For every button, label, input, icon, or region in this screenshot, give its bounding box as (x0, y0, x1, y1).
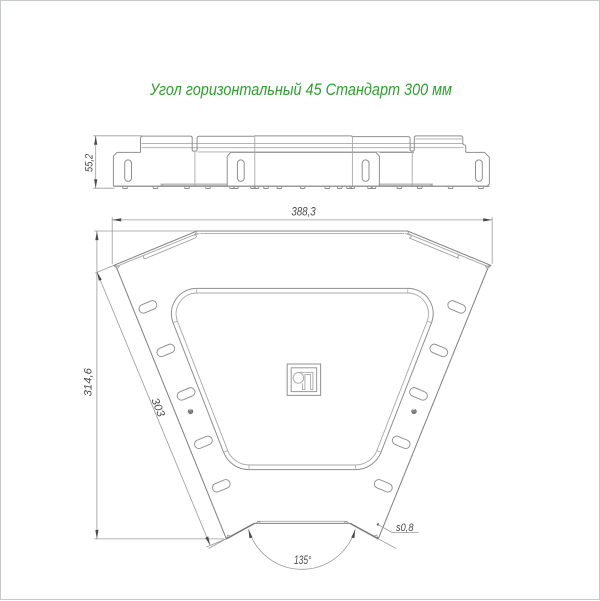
svg-text:314,6: 314,6 (82, 367, 94, 396)
svg-text:135°: 135° (294, 555, 312, 567)
svg-text:55,2: 55,2 (84, 154, 96, 172)
svg-text:388,3: 388,3 (291, 205, 316, 219)
svg-text:303: 303 (148, 396, 167, 419)
svg-text:s0,8: s0,8 (396, 522, 414, 534)
